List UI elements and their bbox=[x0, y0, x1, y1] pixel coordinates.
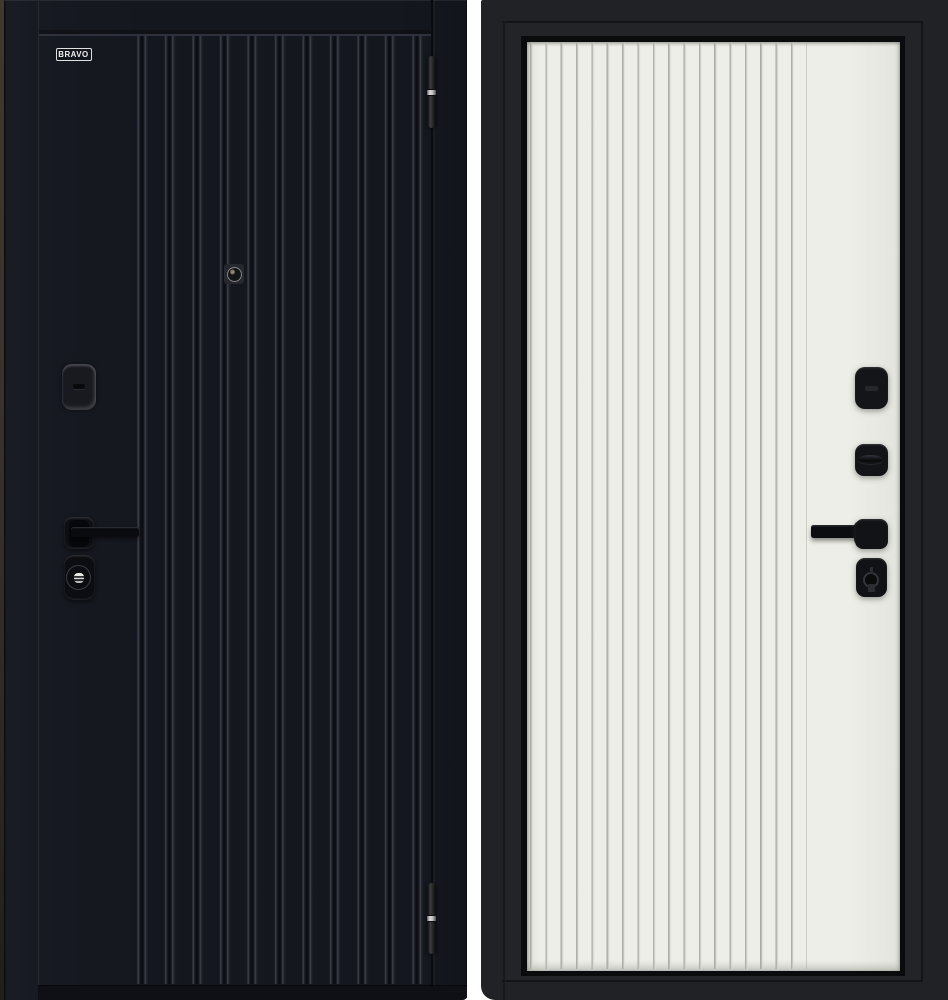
svg-text:BRAVO: BRAVO bbox=[58, 50, 88, 59]
